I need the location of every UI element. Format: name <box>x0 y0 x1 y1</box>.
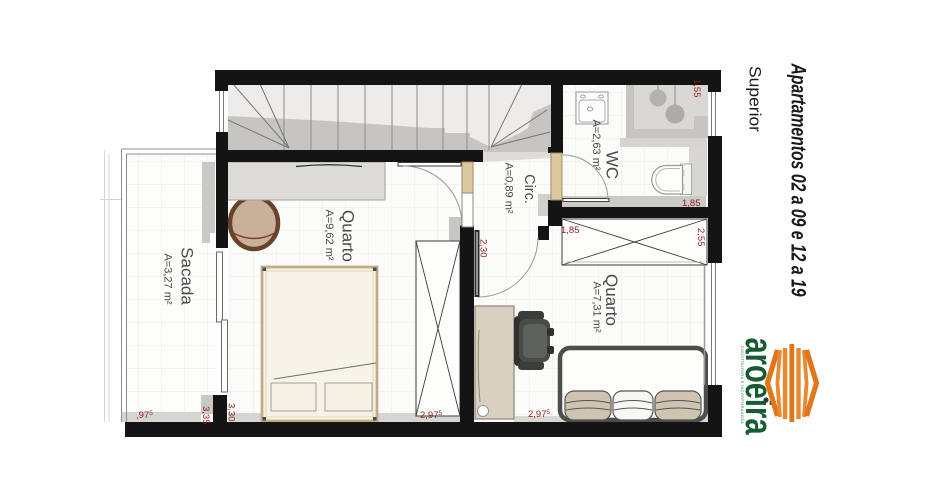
svg-text:Superior: Superior <box>746 66 765 132</box>
svg-text:Circ.: Circ. <box>521 174 537 204</box>
svg-text:2,55: 2,55 <box>695 228 706 247</box>
svg-text:WC: WC <box>603 151 622 179</box>
svg-text:1,85: 1,85 <box>561 225 580 236</box>
svg-text:1,55: 1,55 <box>691 79 702 98</box>
svg-text:A=9,62 m²: A=9,62 m² <box>323 209 335 260</box>
svg-text:Sacada: Sacada <box>178 247 197 305</box>
svg-text:Quarto: Quarto <box>602 274 621 326</box>
svg-text:A=3,27 m²: A=3,27 m² <box>162 253 174 304</box>
svg-text:A=7,31 m²: A=7,31 m² <box>591 281 603 332</box>
svg-text:Quarto: Quarto <box>339 210 358 262</box>
svg-text:A=0,89 m²: A=0,89 m² <box>503 162 515 213</box>
svg-text:3,35: 3,35 <box>200 406 211 425</box>
svg-text:CONSTRUTORA E INCORPORADORA: CONSTRUTORA E INCORPORADORA <box>740 346 744 425</box>
svg-text:2,30: 2,30 <box>478 239 489 258</box>
svg-text:1,85: 1,85 <box>682 198 701 209</box>
svg-text:3,30: 3,30 <box>226 403 237 422</box>
svg-text:A=2,63 m²: A=2,63 m² <box>590 119 602 170</box>
svg-text:Apartamentos 02 a 09 e 12 a 19: Apartamentos 02 a 09 e 12 a 19 <box>787 63 810 297</box>
